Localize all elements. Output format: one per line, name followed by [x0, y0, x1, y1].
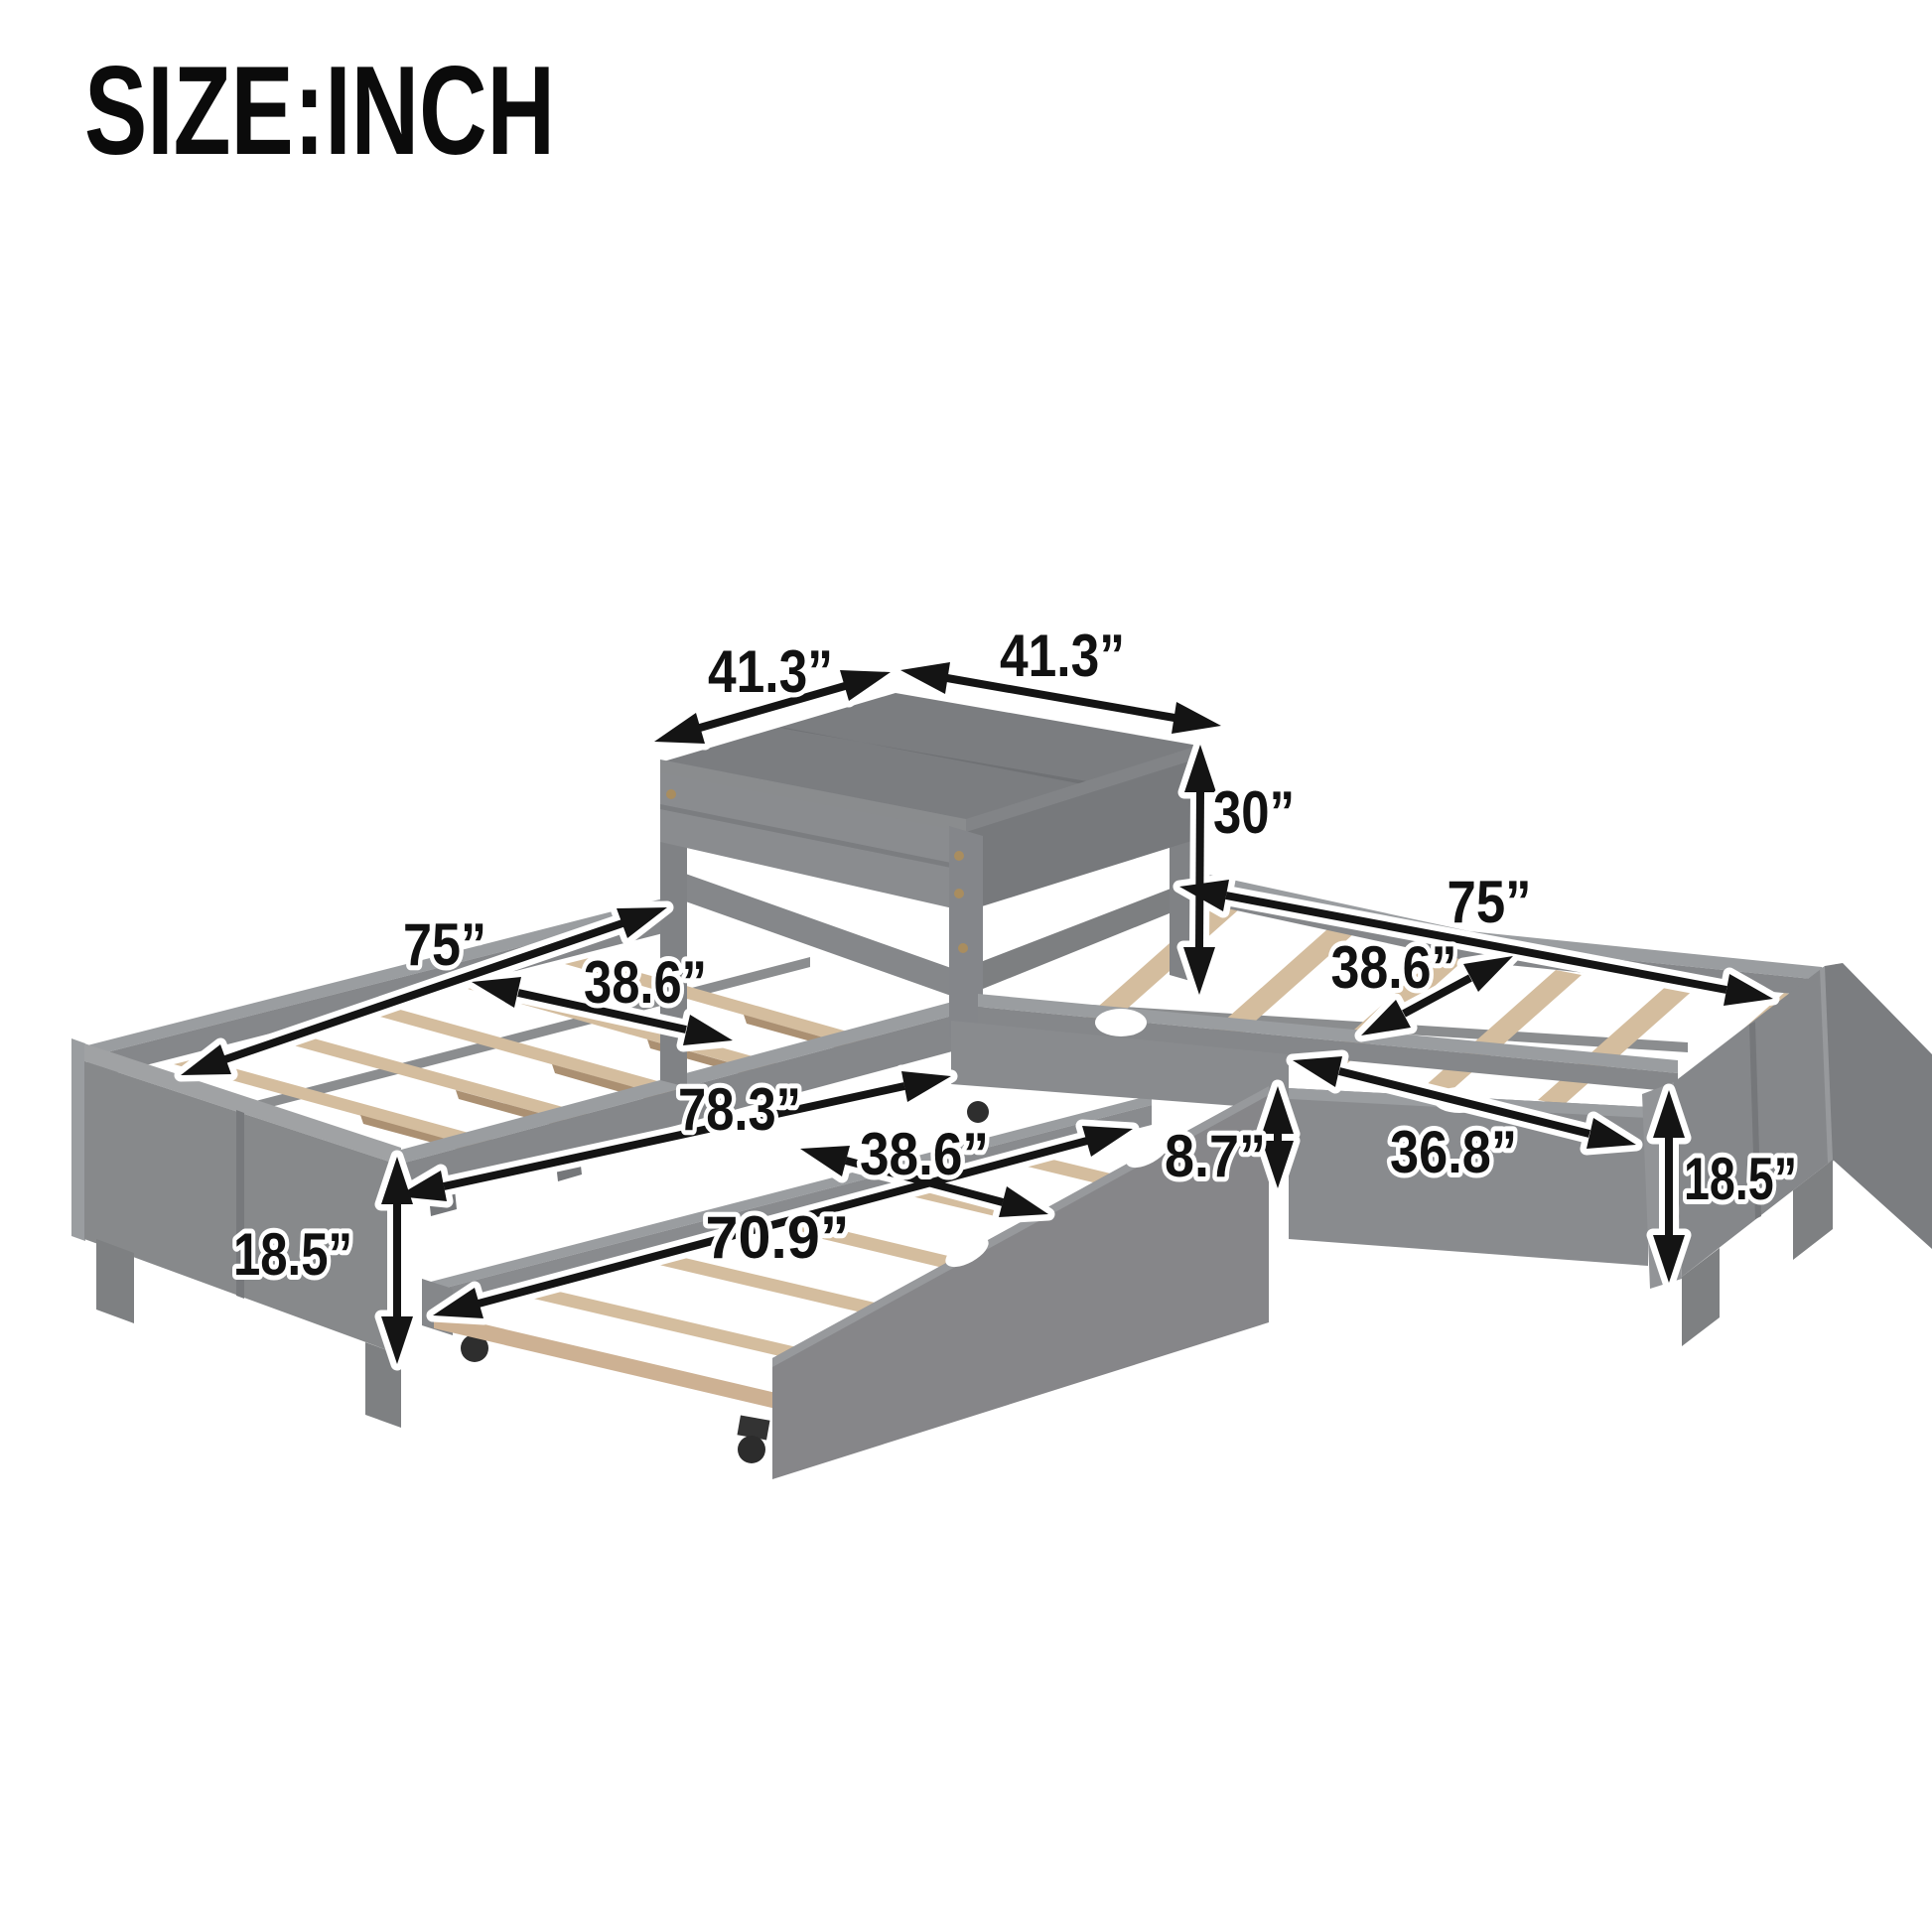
svg-text:30”: 30”: [1213, 779, 1295, 846]
svg-text:36.8”: 36.8”: [1390, 1119, 1517, 1185]
svg-text:SIZE:INCH: SIZE:INCH: [84, 40, 555, 181]
svg-text:38.6”: 38.6”: [1331, 934, 1457, 1001]
svg-text:41.3”: 41.3”: [1000, 622, 1125, 689]
svg-text:38.6”: 38.6”: [584, 949, 707, 1016]
svg-text:70.9”: 70.9”: [706, 1204, 850, 1271]
svg-text:75”: 75”: [1448, 869, 1532, 935]
svg-text:18.5”: 18.5”: [1684, 1146, 1797, 1212]
svg-text:41.3”: 41.3”: [708, 638, 833, 705]
svg-text:78.3”: 78.3”: [678, 1076, 801, 1143]
svg-text:8.7”: 8.7”: [1165, 1123, 1266, 1189]
svg-text:38.6”: 38.6”: [860, 1121, 989, 1187]
svg-text:75”: 75”: [403, 911, 486, 978]
svg-text:18.5”: 18.5”: [233, 1221, 352, 1288]
